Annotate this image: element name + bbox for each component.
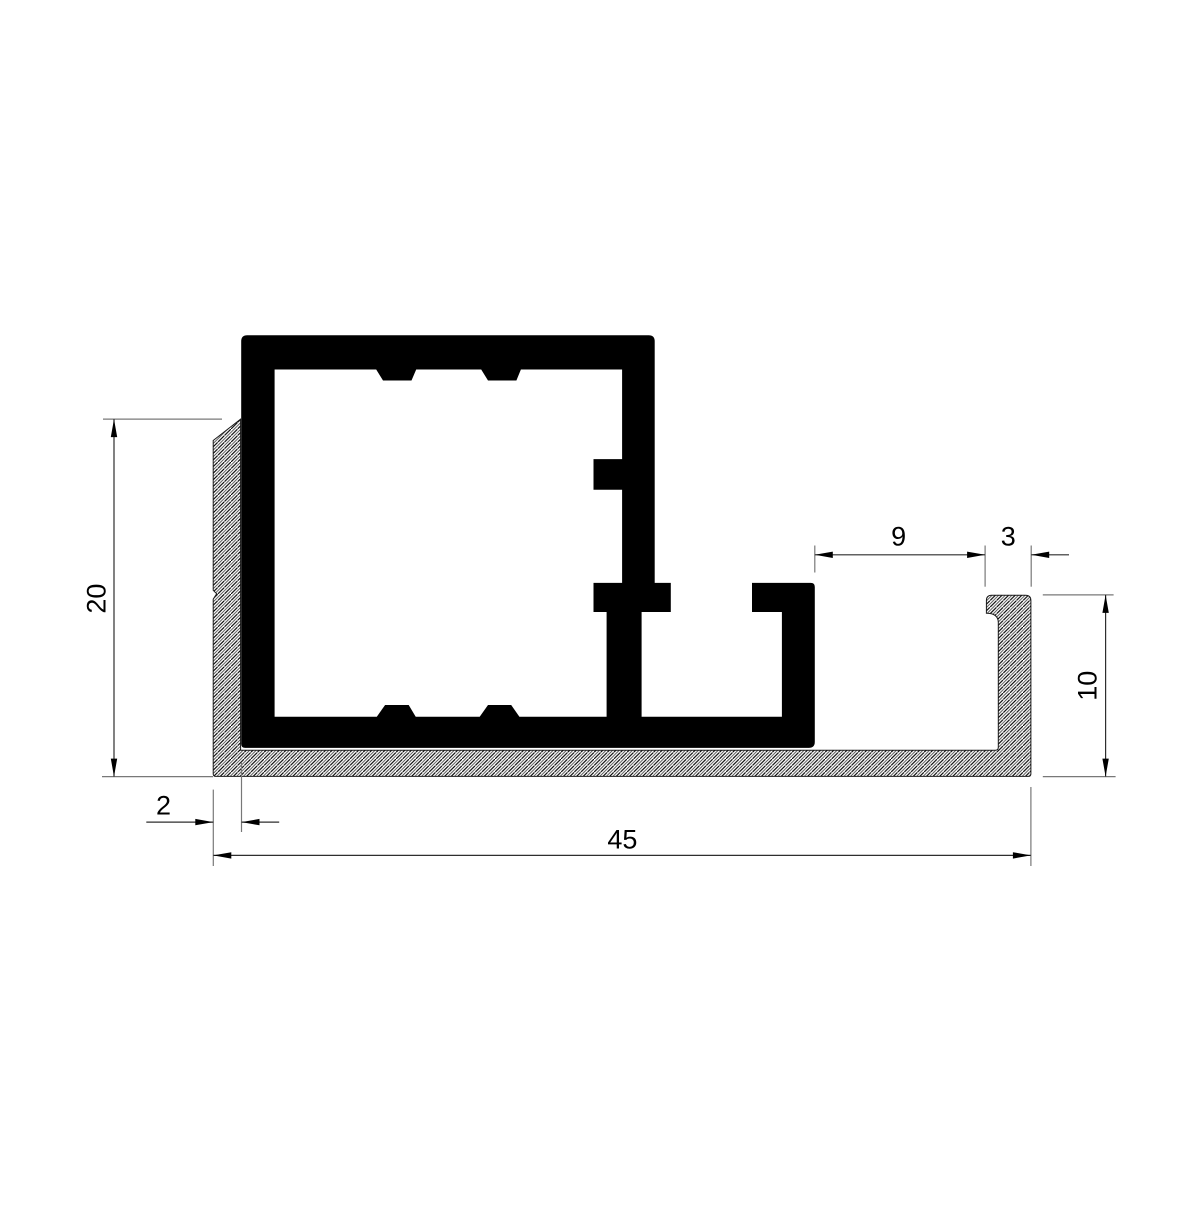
svg-text:2: 2	[156, 791, 171, 821]
svg-text:45: 45	[607, 824, 637, 854]
svg-text:10: 10	[1073, 671, 1103, 701]
svg-text:3: 3	[1001, 522, 1016, 552]
svg-text:9: 9	[891, 522, 906, 552]
svg-text:20: 20	[81, 584, 111, 614]
